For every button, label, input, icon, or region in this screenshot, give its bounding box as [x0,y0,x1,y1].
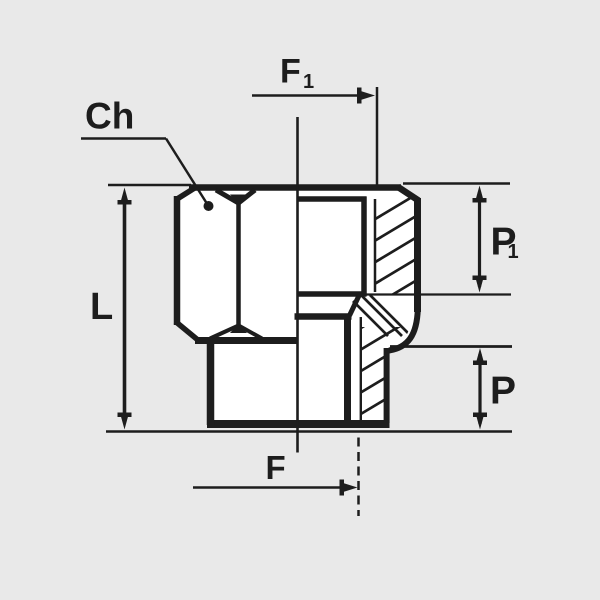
svg-text:F: F [266,449,286,486]
svg-text:Ch: Ch [85,96,134,137]
svg-text:P: P [490,370,516,413]
svg-text:1: 1 [508,241,519,263]
svg-text:F: F [280,53,301,91]
svg-text:1: 1 [303,71,314,93]
svg-text:L: L [90,286,113,328]
